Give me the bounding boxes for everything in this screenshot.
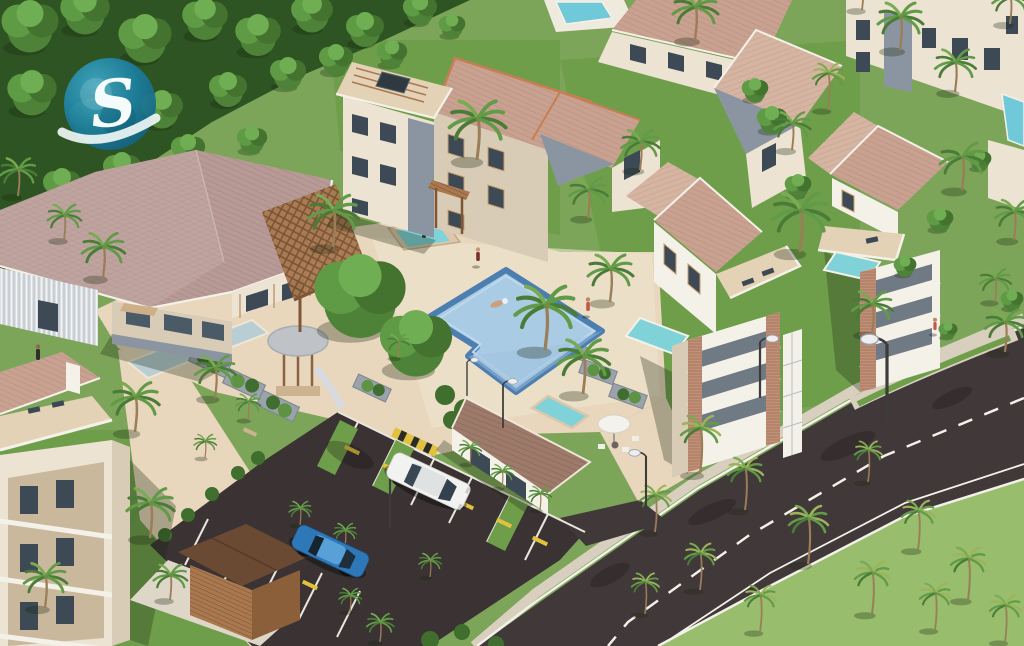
logo-letter: S xyxy=(86,64,140,143)
gazebo-platform xyxy=(276,386,320,396)
person-at-clubhouse xyxy=(36,344,41,360)
balcony-levels xyxy=(0,462,112,646)
balcony-grid-structure xyxy=(783,329,802,458)
table xyxy=(612,442,619,449)
resort-aerial-render: S xyxy=(0,0,1024,646)
brick-column xyxy=(766,312,780,446)
rendering-canvas: S xyxy=(0,0,1024,646)
brick-column xyxy=(860,268,876,392)
umbrella xyxy=(598,415,630,433)
brick-column xyxy=(688,336,702,472)
chimney xyxy=(66,362,80,394)
